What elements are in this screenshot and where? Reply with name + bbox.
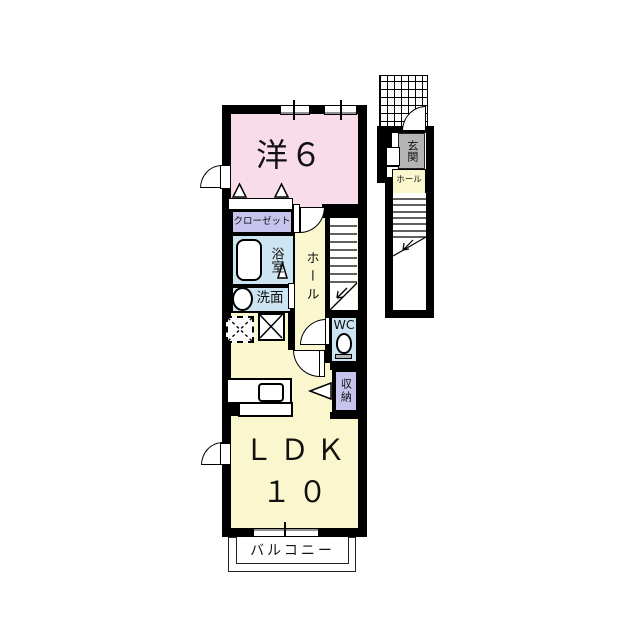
annex-wall-left-lower (385, 180, 393, 318)
floor-plan-canvas: 洋６ クローゼット 浴室 洗面 ホール WC 収納 ＬＤＫ １０ バルコニー (0, 0, 639, 640)
annex-wall-right (426, 126, 434, 318)
room-wc-label: WC (330, 318, 358, 332)
ldk-entry-door-leaf (220, 443, 231, 465)
folding-door-arrow-icon (309, 382, 332, 400)
room-storage-label: 収納 (332, 372, 358, 410)
window-icon (280, 105, 310, 115)
hall-top-door-leaf (293, 204, 300, 233)
window-icon (253, 528, 319, 537)
room-genkan-hall-label: ホール (392, 170, 426, 192)
room-genkan-label: 玄関 (398, 134, 425, 168)
stairs-icon (330, 218, 357, 310)
fridge-space-icon (226, 316, 254, 343)
wall-below-storage (330, 412, 358, 419)
bathtub-icon (236, 239, 262, 281)
washroom-door-leaf (288, 283, 295, 309)
stairs-icon (393, 193, 426, 310)
kitchen-shelf-icon (238, 402, 293, 417)
toilet-icon (336, 333, 352, 354)
room-hall-label: ホール (298, 243, 322, 313)
window-tick (340, 100, 342, 120)
room-ldk-size-label: １０ (231, 475, 358, 511)
kitchen-sink-icon (258, 383, 284, 402)
closet-door-mark-icon (232, 183, 247, 198)
toilet-base-icon (335, 354, 352, 359)
room-western-label: 洋６ (231, 133, 349, 177)
room-bath-label: 浴室 (264, 239, 286, 281)
room-closet-label: クローゼット (231, 211, 293, 233)
door-arc-icon (200, 165, 222, 188)
washer-space-icon (258, 313, 285, 341)
room-ldk-label: ＬＤＫ (231, 433, 358, 469)
balcony-label: バルコニー (236, 541, 349, 561)
entrance-stairwell-plan: 玄関 ホール (377, 70, 435, 320)
closet-door-mark-icon (274, 183, 289, 198)
closet-door-icon (228, 198, 293, 210)
main-unit-plan: 洋６ クローゼット 浴室 洗面 ホール WC 収納 ＬＤＫ １０ バルコニー (222, 105, 367, 537)
window-tick (293, 100, 295, 120)
western-entry-door-leaf (220, 165, 231, 189)
sink-icon (232, 287, 253, 311)
room-washroom-label: 洗面 (252, 290, 288, 308)
annex-wall-bottom (385, 310, 434, 318)
wall-below-wc (330, 363, 358, 370)
